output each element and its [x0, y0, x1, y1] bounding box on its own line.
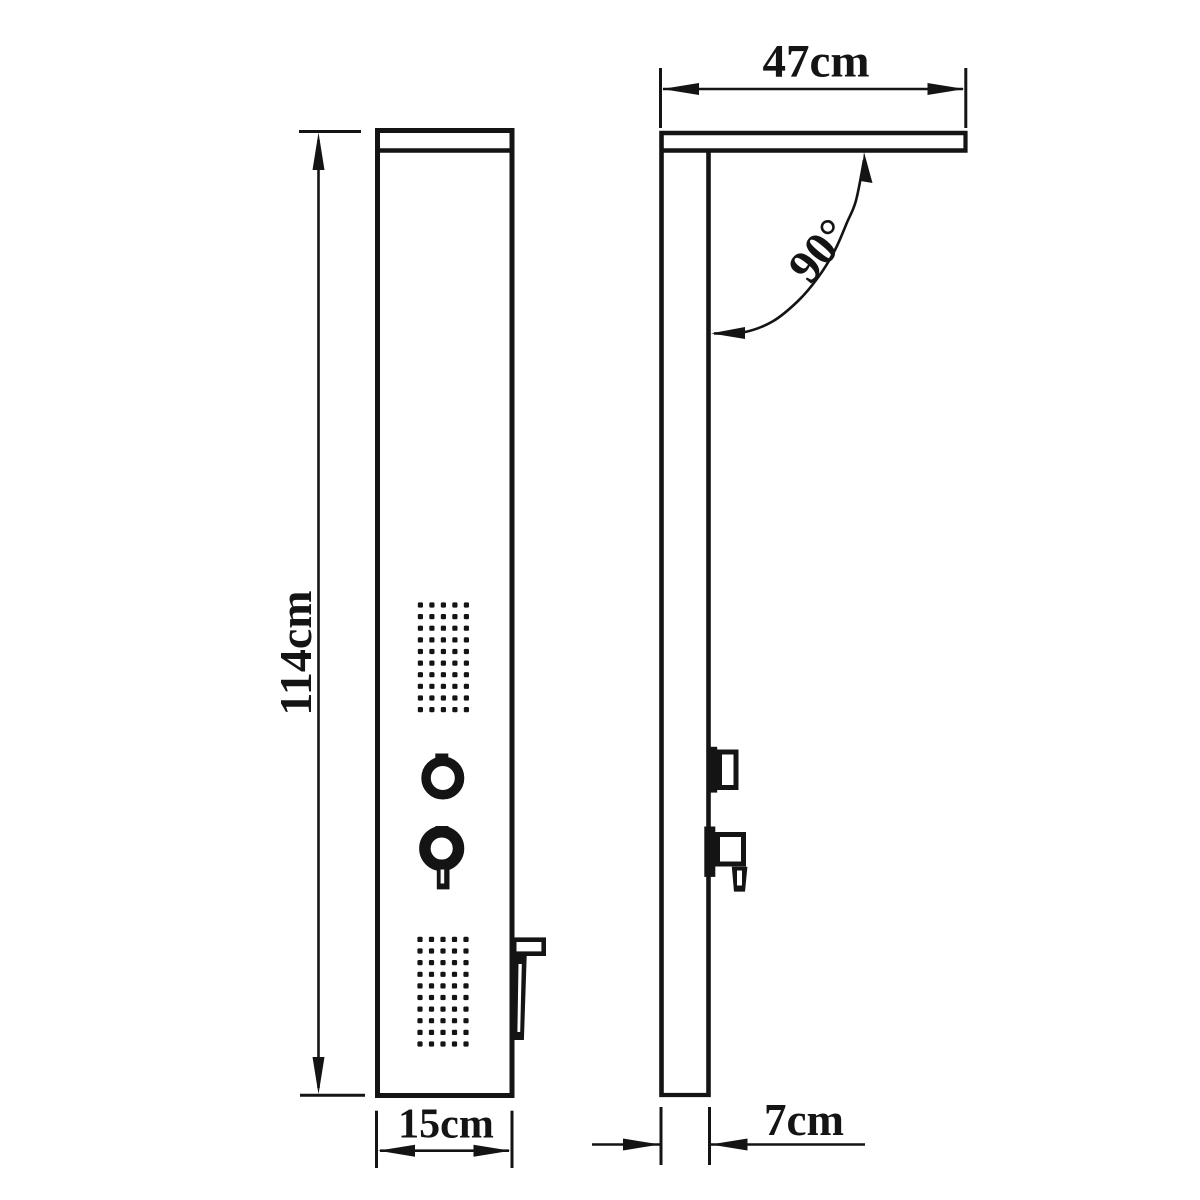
svg-text:47cm: 47cm — [762, 36, 869, 88]
svg-text:7cm: 7cm — [764, 1095, 844, 1145]
svg-text:114cm: 114cm — [270, 590, 321, 715]
svg-text:15cm: 15cm — [398, 1102, 494, 1148]
